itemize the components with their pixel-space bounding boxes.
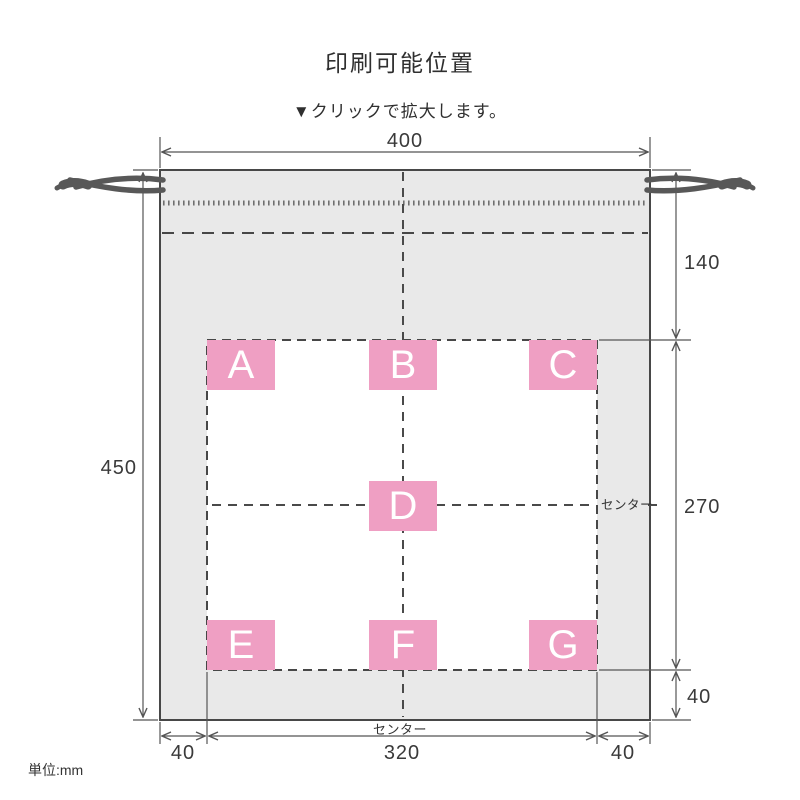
print-position-box-e[interactable]: E: [207, 620, 275, 670]
dim-label-left-height: 450: [93, 458, 137, 478]
print-position-box-f[interactable]: F: [369, 620, 437, 670]
print-position-label: F: [391, 625, 415, 665]
print-position-box-c[interactable]: C: [529, 340, 597, 390]
page: 印刷可能位置 ▼クリックで拡大します。: [0, 0, 800, 800]
dim-label-right-middle: 270: [684, 497, 720, 517]
print-position-label: A: [228, 345, 255, 385]
center-label-right: センター: [601, 499, 653, 512]
dim-label-right-bottom: 40: [687, 687, 711, 707]
print-position-box-d[interactable]: D: [369, 481, 437, 531]
dim-label-bottom-right: 40: [611, 743, 635, 763]
center-label-bottom: センター: [373, 723, 427, 736]
dim-label-bottom-left: 40: [171, 743, 195, 763]
unit-note: 単位:mm: [28, 763, 83, 777]
print-position-label: B: [390, 345, 417, 385]
left-drawstring: [57, 178, 163, 191]
dim-label-bottom-center: 320: [384, 743, 420, 763]
right-drawstring: [647, 178, 753, 191]
print-position-box-g[interactable]: G: [529, 620, 597, 670]
print-position-box-b[interactable]: B: [369, 340, 437, 390]
print-position-label: C: [549, 345, 578, 385]
dim-label-right-top: 140: [684, 253, 720, 273]
print-position-label: D: [389, 486, 418, 526]
print-position-box-a[interactable]: A: [207, 340, 275, 390]
dim-label-top-width: 400: [387, 131, 423, 151]
print-position-label: E: [228, 625, 255, 665]
printable-area-diagram[interactable]: A B C D E F G 400 450 140 270 40 40 320 …: [0, 0, 800, 800]
print-position-label: G: [547, 625, 578, 665]
diagram-linework: [0, 0, 800, 800]
